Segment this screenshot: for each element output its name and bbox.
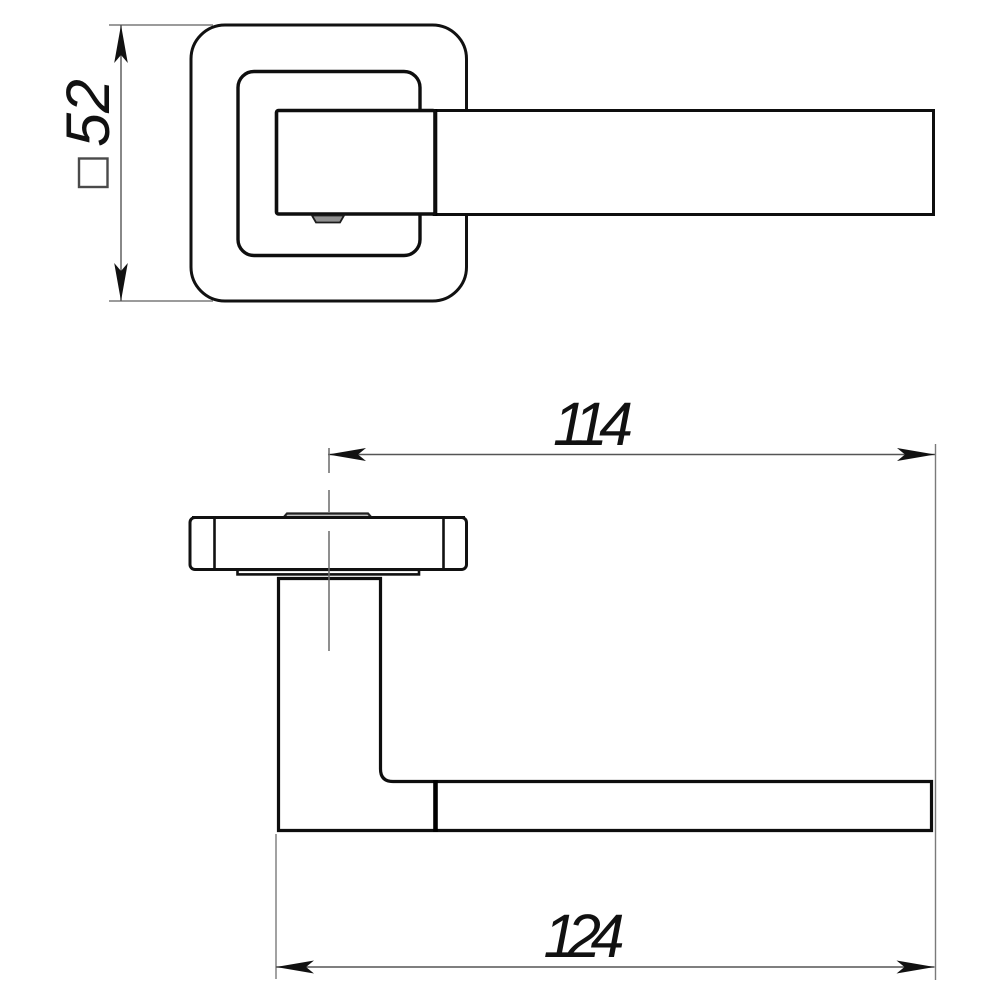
svg-text:124: 124 <box>544 902 625 970</box>
svg-text:114: 114 <box>553 390 633 458</box>
svg-text:52: 52 <box>54 79 122 147</box>
